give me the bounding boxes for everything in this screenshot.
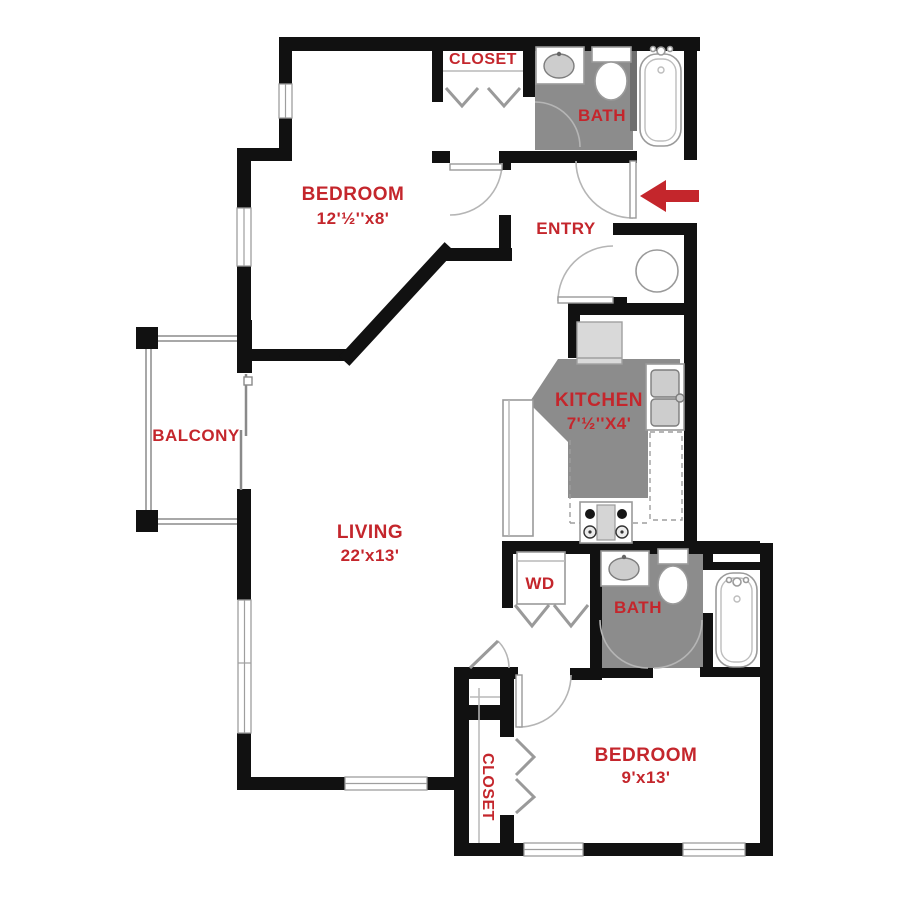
door-swing-icon — [450, 163, 502, 215]
refrigerator-icon — [577, 322, 622, 364]
sliding-door-icon — [241, 374, 252, 490]
floor-plan: CLOSET BATH BEDROOM 12'½''x8' ENTRY KITC… — [0, 0, 900, 900]
entry-label: ENTRY — [536, 219, 596, 238]
living-dims: 22'x13' — [341, 546, 400, 565]
bath-bottom-label: BATH — [614, 598, 662, 617]
bedroom-bottom-dims: 9'x13' — [622, 768, 671, 787]
door-swing-icon — [470, 641, 509, 668]
window-icon — [279, 84, 292, 118]
balcony-label: BALCONY — [152, 426, 240, 445]
kitchen-counter — [503, 400, 533, 536]
door-swing-icon — [576, 161, 636, 218]
window-icon — [237, 208, 251, 266]
partition-wall — [630, 51, 637, 131]
water-heater-icon — [636, 250, 678, 292]
bedroom-top-dims: 12'½''x8' — [317, 209, 390, 228]
kitchen-dims: 7'½''X4' — [567, 414, 632, 433]
bifold-door-icon — [446, 88, 520, 106]
window-icon — [683, 843, 745, 856]
bathtub-icon — [640, 47, 681, 147]
laundry-label: WD — [525, 574, 554, 593]
angled-wall — [349, 252, 445, 356]
balcony-post — [136, 327, 158, 349]
window-icon — [524, 843, 583, 856]
window-icon — [345, 777, 427, 790]
balcony-post — [136, 510, 158, 532]
door-swing-icon — [516, 675, 571, 727]
bedroom-bottom-label: BEDROOM — [595, 745, 698, 766]
closet-bottom-label: CLOSET — [479, 753, 496, 821]
kitchen-sink-icon — [646, 364, 684, 430]
window-icon — [238, 600, 251, 733]
sink-icon — [601, 551, 649, 586]
bifold-door-icon — [515, 605, 588, 626]
sink-icon — [536, 47, 584, 84]
entry-arrow-icon — [640, 180, 699, 212]
closet-top-label: CLOSET — [449, 51, 517, 68]
range-icon — [580, 502, 632, 543]
door-swing-icon — [558, 246, 613, 303]
bath-top-label: BATH — [578, 106, 626, 125]
kitchen-label: KITCHEN — [555, 390, 643, 411]
bathtub-icon — [716, 573, 757, 667]
toilet-icon — [658, 549, 688, 604]
living-label: LIVING — [337, 522, 403, 543]
bedroom-top-label: BEDROOM — [302, 184, 405, 205]
floor-plan-canvas: CLOSET BATH BEDROOM 12'½''x8' ENTRY KITC… — [0, 0, 900, 900]
bifold-door-icon — [516, 739, 534, 813]
